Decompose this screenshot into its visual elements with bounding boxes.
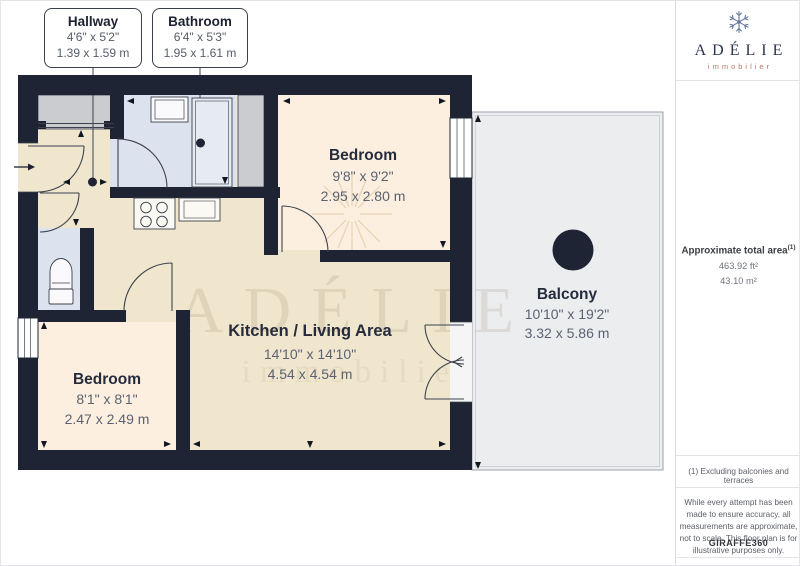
sidebar-divider [676, 80, 800, 81]
total-area-block: Approximate total area(1) 463.92 ft² 43.… [676, 244, 800, 286]
sidebar-divider [676, 455, 800, 456]
bathroom-callout-imperial: 6'4" x 5'3" [153, 30, 247, 45]
giraffe360-credit: GIRAFFE360 [676, 538, 800, 548]
hallway-leader-dot [88, 178, 97, 187]
bedroom-top-title: Bedroom [329, 147, 397, 164]
kitchen-living-imperial: 14'10" x 14'10" [264, 346, 356, 362]
total-area-imperial: 463.92 ft² [676, 261, 800, 271]
info-sidebar: ADÉLIE immobilier Approximate total area… [675, 0, 800, 566]
footnote-marker: (1) [788, 244, 796, 251]
bathroom-callout: Bathroom 6'4" x 5'3" 1.95 x 1.61 m [152, 8, 248, 68]
total-area-metric: 43.10 m² [676, 276, 800, 286]
floorplan-svg: ADÉLIE immobilier [0, 0, 675, 566]
floorplan-page: ADÉLIE immobilier [0, 0, 800, 566]
balcony-table-icon [553, 230, 594, 271]
sidebar-divider [676, 487, 800, 488]
wardrobe-closet [238, 95, 264, 187]
kitchen-living-title: Kitchen / Living Area [228, 322, 392, 340]
bedroom-left-title: Bedroom [73, 371, 141, 388]
total-area-label: Approximate total area(1) [676, 244, 800, 256]
hallway-callout: Hallway 4'6" x 5'2" 1.39 x 1.59 m [44, 8, 142, 68]
hallway-callout-title: Hallway [45, 14, 141, 30]
hallway-callout-imperial: 4'6" x 5'2" [45, 30, 141, 45]
bedroom-left-metric: 2.47 x 2.49 m [65, 411, 150, 427]
balcony-title: Balcony [537, 286, 598, 303]
hallway-callout-metric: 1.39 x 1.59 m [45, 46, 141, 61]
right-window [450, 118, 472, 178]
balcony-imperial: 10'10" x 19'2" [525, 306, 610, 322]
kitchen-living-metric: 4.54 x 4.54 m [268, 366, 353, 382]
sidebar-divider [676, 557, 800, 558]
kitchen-sink-icon [179, 198, 220, 221]
brand-name: ADÉLIE [682, 42, 800, 60]
balcony-metric: 3.32 x 5.86 m [525, 325, 610, 341]
toilet-icon [49, 259, 73, 305]
bathroom-sink-icon [151, 97, 188, 122]
bathroom-leader-dot [196, 139, 205, 148]
bathroom-callout-metric: 1.95 x 1.61 m [153, 46, 247, 61]
area-footnote: (1) Excluding balconies and terraces [680, 467, 797, 485]
stove-icon [134, 198, 175, 229]
floorplan-canvas: ADÉLIE immobilier [0, 0, 675, 566]
bedroom-top-metric: 2.95 x 2.80 m [321, 188, 406, 204]
left-window [18, 318, 38, 358]
bedroom-top-imperial: 9'8" x 9'2" [332, 168, 393, 184]
brand-logo: ADÉLIE immobilier [676, 10, 800, 71]
bathroom-callout-title: Bathroom [153, 14, 247, 30]
snowflake-icon [727, 10, 751, 34]
brand-tagline: immobilier [679, 62, 800, 71]
bedroom-left-imperial: 8'1" x 8'1" [76, 391, 137, 407]
